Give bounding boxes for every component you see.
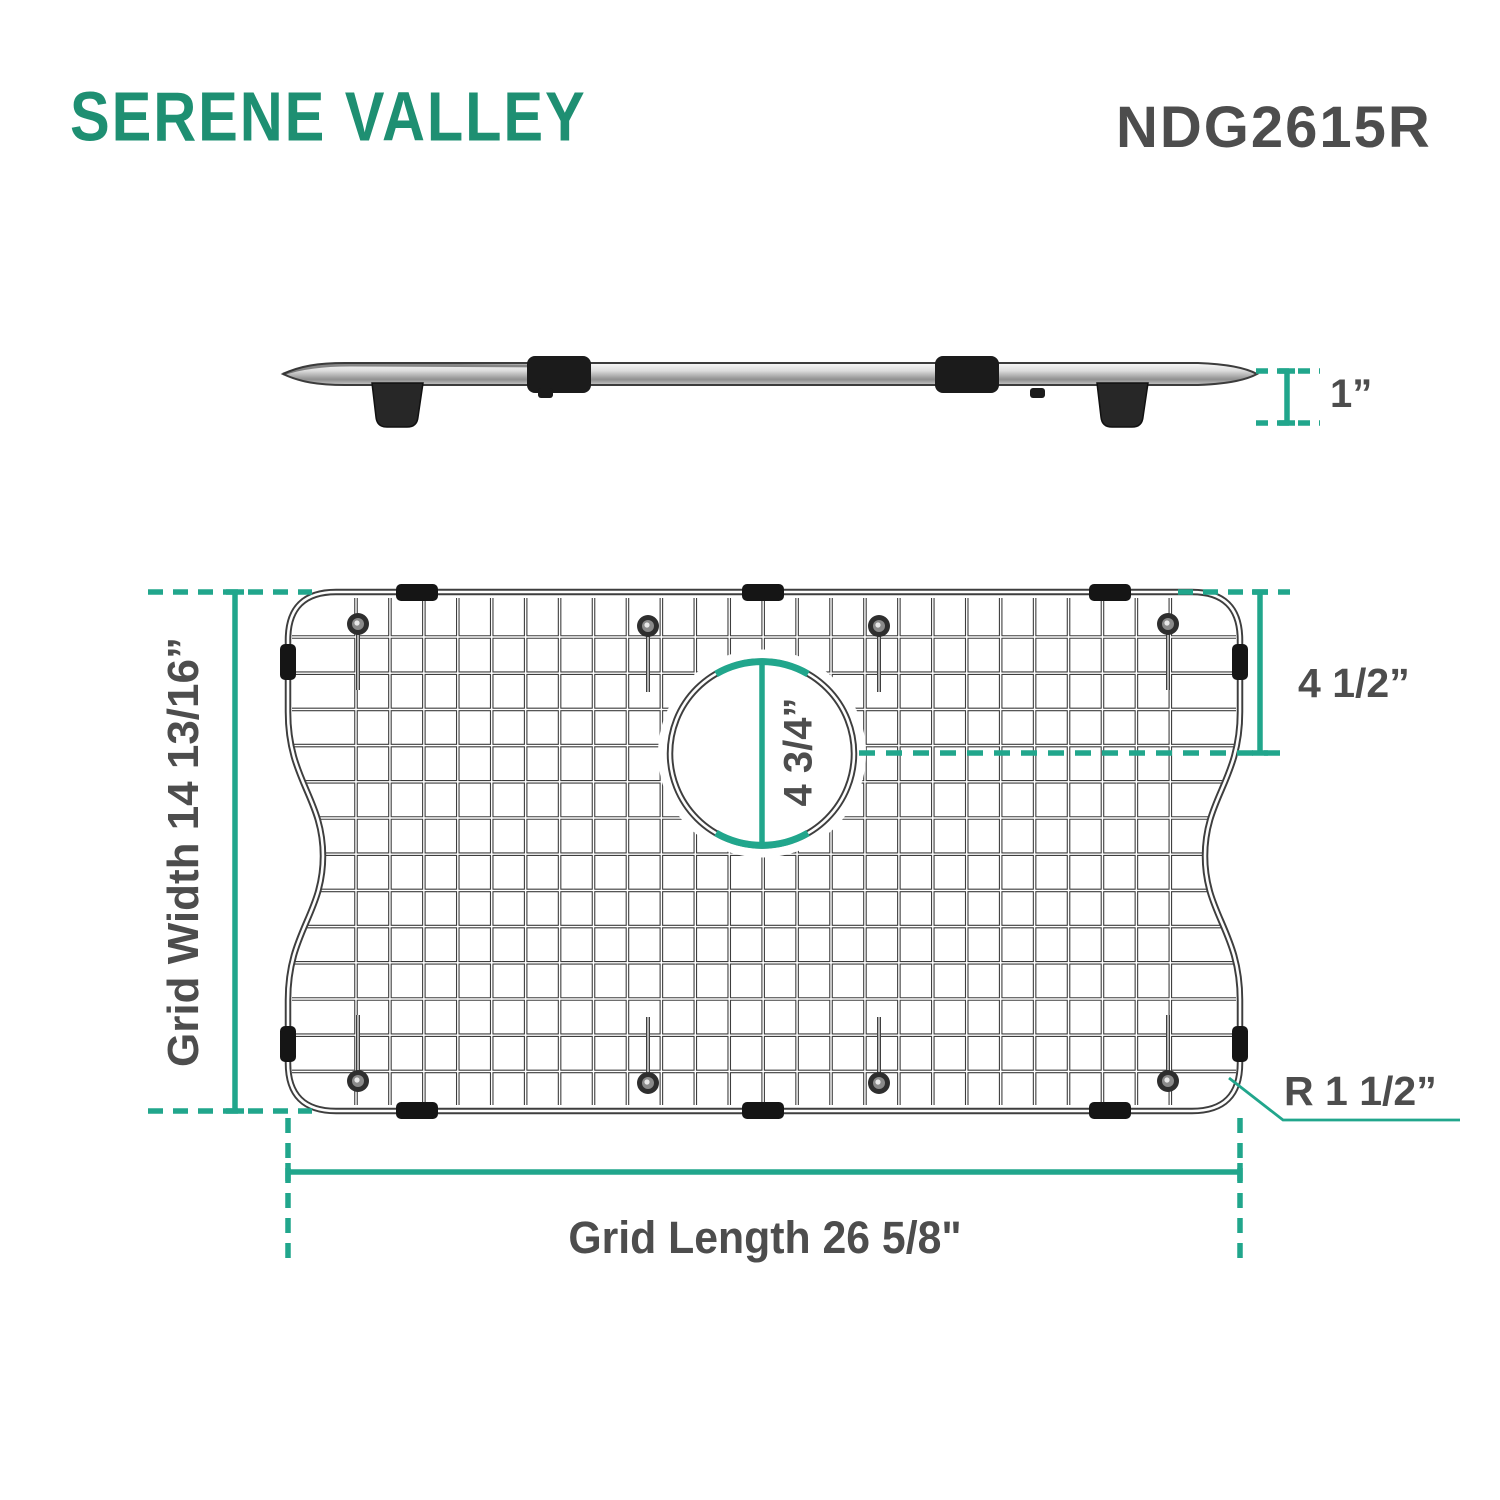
- product-dimension-diagram: { "brand": { "logo": "SERENE VALLEY", "m…: [0, 0, 1500, 1500]
- foot-eyelet: [1157, 1015, 1179, 1092]
- foot-eyelet: [347, 613, 369, 690]
- side-view-drawing: [283, 356, 1257, 427]
- foot-eyelet: [1157, 613, 1179, 690]
- dim-grid-width-label: Grid Width 14 13/16”: [159, 637, 209, 1067]
- side-view-foot-right: [1097, 383, 1148, 427]
- side-view-clip-left: [527, 356, 591, 393]
- diagram-canvas: [0, 0, 1500, 1500]
- logo-text: SERENE VALLEY: [70, 78, 587, 158]
- dim-corner-radius-label: R 1 1/2”: [1284, 1068, 1437, 1115]
- dim-drain-offset-label: 4 1/2”: [1298, 660, 1410, 707]
- foot-eyelet: [637, 1017, 659, 1094]
- dim-drain-diameter-label: 4 3/4”: [777, 698, 822, 807]
- dim-height-label: 1”: [1330, 372, 1372, 417]
- dim-grid-length-label: Grid Length 26 5/8": [568, 1212, 961, 1264]
- dim-height-lines: [1256, 371, 1320, 423]
- side-view-foot-left: [372, 383, 423, 427]
- foot-eyelet: [868, 615, 890, 692]
- model-number: NDG2615R: [1116, 94, 1432, 161]
- foot-eyelet: [347, 1015, 369, 1092]
- side-view-clip-right: [935, 356, 999, 393]
- foot-eyelet: [637, 615, 659, 692]
- foot-eyelet: [868, 1017, 890, 1094]
